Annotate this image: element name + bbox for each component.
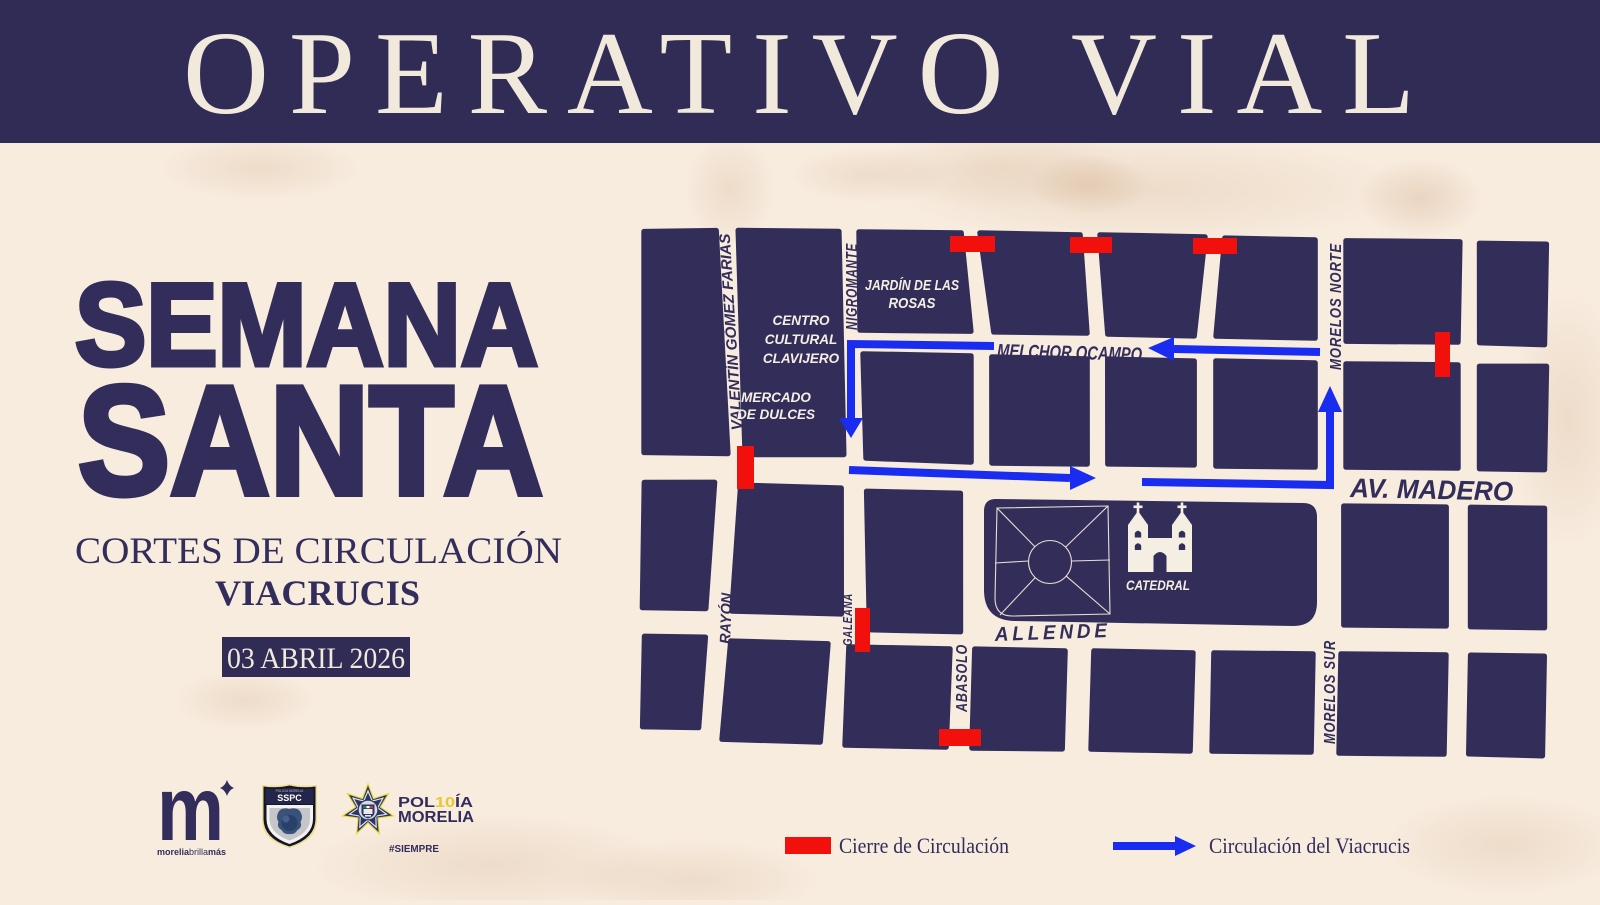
svg-text:VIACRUCIS: VIACRUCIS xyxy=(215,573,420,613)
svg-text:CATEDRAL: CATEDRAL xyxy=(1126,578,1190,593)
svg-text:m: m xyxy=(157,759,224,860)
svg-text:moreliabrillamás: moreliabrillamás xyxy=(157,847,226,857)
svg-text:NIGROMANTE: NIGROMANTE xyxy=(844,243,861,330)
svg-text:03 ABRIL 2026: 03 ABRIL 2026 xyxy=(227,642,405,675)
svg-text:MELCHOR OCAMPO: MELCHOR OCAMPO xyxy=(997,341,1143,366)
svg-text:MORELIA: MORELIA xyxy=(398,809,474,826)
svg-text:RAYÓN: RAYÓN xyxy=(716,591,736,644)
svg-text:Circulación del Viacrucis: Circulación del Viacrucis xyxy=(1209,833,1410,858)
svg-text:MORELOS NORTE: MORELOS NORTE xyxy=(1328,243,1345,370)
svg-text:DE DULCES: DE DULCES xyxy=(737,407,815,422)
svg-text:CORTES DE CIRCULACIÓN: CORTES DE CIRCULACIÓN xyxy=(75,530,562,572)
svg-text:GALEANA: GALEANA xyxy=(840,593,855,646)
svg-text:POLICIA MORELIA: POLICIA MORELIA xyxy=(276,789,305,793)
svg-text:ALLENDE: ALLENDE xyxy=(993,620,1111,646)
svg-text:SSPC: SSPC xyxy=(277,793,302,803)
svg-text:SANTA: SANTA xyxy=(78,354,543,527)
svg-text:CENTRO: CENTRO xyxy=(773,313,830,328)
svg-text:CULTURAL: CULTURAL xyxy=(765,332,837,347)
svg-text:AV. MADERO: AV. MADERO xyxy=(1349,473,1514,507)
svg-text:MERCADO: MERCADO xyxy=(741,390,811,405)
svg-text:CLAVIJERO: CLAVIJERO xyxy=(763,351,840,366)
svg-text:#SIEMPRE: #SIEMPRE xyxy=(389,843,439,855)
svg-text:JARDÍN DE LAS: JARDÍN DE LAS xyxy=(865,277,959,294)
svg-text:ABASOLO: ABASOLO xyxy=(954,644,971,713)
svg-text:MORELOS SUR: MORELOS SUR xyxy=(1322,640,1339,744)
svg-text:ROSAS: ROSAS xyxy=(889,296,936,312)
svg-text:Cierre de Circulación: Cierre de Circulación xyxy=(839,833,1009,858)
